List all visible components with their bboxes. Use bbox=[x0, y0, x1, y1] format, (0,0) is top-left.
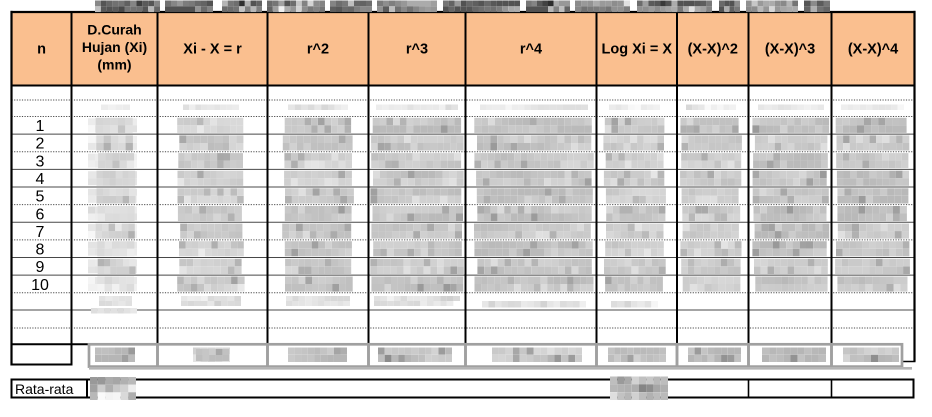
svg-text:r^2: r^2 bbox=[307, 42, 329, 58]
svg-text:(X-X)^4: (X-X)^4 bbox=[848, 42, 898, 58]
svg-text:1: 1 bbox=[36, 118, 45, 135]
svg-text:9: 9 bbox=[36, 259, 45, 276]
svg-text:4: 4 bbox=[36, 171, 45, 188]
svg-text:Hujan (Xi): Hujan (Xi) bbox=[82, 39, 147, 55]
svg-text:Rata-rata: Rata-rata bbox=[15, 381, 74, 397]
svg-text:2: 2 bbox=[36, 136, 45, 153]
svg-text:10: 10 bbox=[31, 277, 49, 294]
svg-text:Xi - X = r: Xi - X = r bbox=[183, 42, 242, 58]
svg-text:n: n bbox=[37, 42, 46, 58]
svg-text:r^3: r^3 bbox=[406, 42, 428, 58]
svg-text:5: 5 bbox=[36, 189, 45, 206]
svg-text:D.Curah: D.Curah bbox=[87, 22, 141, 38]
svg-text:(X-X)^3: (X-X)^3 bbox=[765, 42, 815, 58]
svg-text:(X-X)^2: (X-X)^2 bbox=[688, 42, 738, 58]
svg-text:7: 7 bbox=[36, 224, 45, 241]
svg-text:3: 3 bbox=[36, 153, 45, 170]
svg-text:Log Xi = X: Log Xi = X bbox=[602, 42, 673, 58]
svg-text:r^4: r^4 bbox=[520, 42, 542, 58]
svg-text:8: 8 bbox=[36, 242, 45, 259]
svg-text:6: 6 bbox=[36, 206, 45, 223]
svg-text:(mm): (mm) bbox=[97, 57, 131, 73]
